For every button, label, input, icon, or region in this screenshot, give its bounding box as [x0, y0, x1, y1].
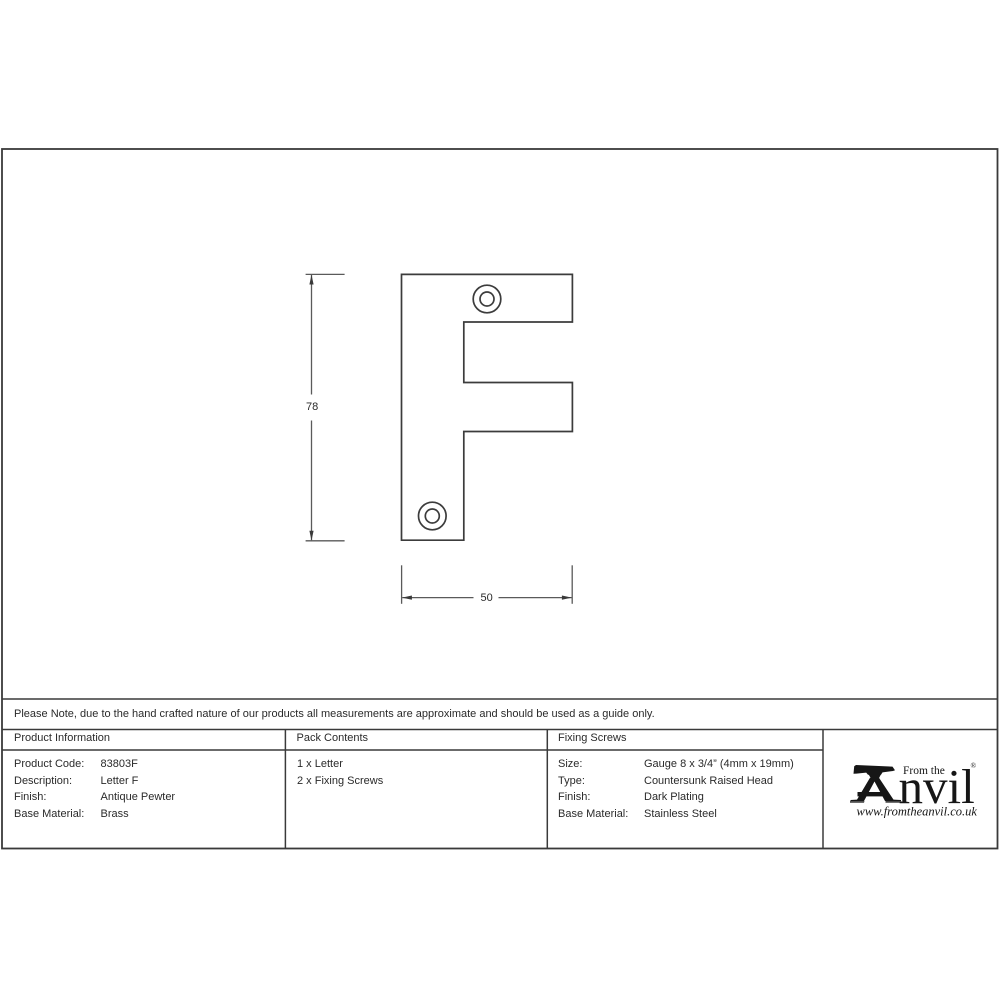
svg-text:www.fromtheanvil.co.uk: www.fromtheanvil.co.uk: [857, 805, 978, 819]
svg-text:®: ®: [971, 761, 977, 770]
